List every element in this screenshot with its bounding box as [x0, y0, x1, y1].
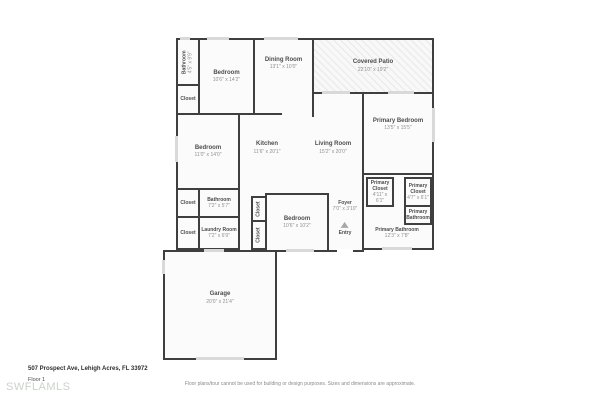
room-label: Dining Room 13'1" x 10'0" [265, 57, 302, 71]
room-label: Bedroom 10'6" x 10'2" [283, 216, 310, 230]
room-name: Closet [256, 227, 262, 242]
window [180, 37, 190, 40]
window [286, 249, 314, 252]
window [162, 260, 165, 274]
room-name: Closet [180, 200, 195, 206]
room-dims: 7'2" x 5'7" [208, 203, 230, 209]
room-dims: 10'6" x 14'2" [213, 77, 240, 83]
room-dims: 12'3" x 7'8" [385, 233, 410, 239]
room-name: Kitchen [256, 141, 278, 149]
room-label: Garage 20'0" x 21'4" [206, 291, 233, 305]
window [432, 108, 435, 142]
room-name: Closet [180, 230, 195, 236]
room-bedroom-bottom: Bedroom 10'6" x 10'2" [265, 193, 329, 252]
room-name: Garage [210, 291, 231, 299]
room-name: Primary Bathroom [406, 209, 430, 222]
opening-dining-kitchen [282, 111, 312, 117]
room-label: Primary Closet 4'11" x 6'1" [368, 180, 392, 205]
window [264, 37, 298, 40]
disclaimer-text: Floor plans/tour cannot be used for buil… [185, 381, 415, 387]
room-label: Bathroom 7'2" x 5'7" [207, 197, 231, 210]
floor-label: Floor 1 [28, 377, 45, 383]
room-dining: Dining Room 13'1" x 10'0" [253, 38, 314, 115]
room-dims: 7'0" x 3'10" [333, 206, 358, 212]
room-dims: 20'0" x 21'4" [206, 299, 233, 305]
room-label: Closet [180, 96, 195, 102]
room-name: Living Room [315, 141, 351, 149]
room-dims: 22'10" x 19'2" [358, 67, 388, 73]
room-closet-mid-2: Closet [176, 216, 200, 250]
room-garage: Garage 20'0" x 21'4" [163, 250, 277, 360]
floor-plan-canvas: Bathroom 4'5" x 9'9" Closet Bedroom 10'6… [0, 0, 600, 400]
room-name: Closet [256, 201, 262, 216]
entry-marker: Entry [339, 222, 352, 236]
room-primary-closet-1: Primary Closet 4'11" x 6'1" [366, 177, 394, 207]
room-dims: 13'1" x 10'0" [270, 64, 297, 70]
room-label: Laundry Room 7'2" x 6'9" [201, 227, 236, 240]
room-label: Bathroom 4'5" x 9'9" [182, 50, 195, 74]
room-laundry: Laundry Room 7'2" x 6'9" [198, 216, 240, 250]
room-dims: 4'7" x 6'1" [407, 195, 429, 201]
room-label: Closet [256, 227, 262, 242]
room-covered-patio: Covered Patio 22'10" x 19'2" [312, 38, 434, 94]
window [175, 136, 178, 162]
room-closet-top: Closet [176, 84, 200, 115]
room-name: Primary Closet [406, 183, 430, 196]
entry-label: Entry [339, 230, 352, 236]
room-dims: 4'11" x 6'1" [368, 192, 392, 205]
room-label: Bedroom 11'0" x 14'0" [194, 145, 221, 159]
room-label-primary-bath: Primary Bathroom 12'3" x 7'8" [375, 227, 419, 240]
room-primary-bathroom-small: Primary Bathroom [404, 205, 432, 225]
room-name: Primary Closet [368, 180, 392, 193]
opening-entry-door [337, 249, 353, 253]
room-bedroom-left: Bedroom 11'0" x 14'0" [176, 113, 240, 190]
room-name: Bedroom [284, 216, 310, 224]
garage-door [196, 357, 244, 360]
room-label: Covered Patio 22'10" x 19'2" [353, 59, 393, 73]
room-primary-bedroom: Primary Bedroom 13'5" x 15'5" [362, 92, 434, 175]
room-dims: 10'6" x 10'2" [283, 223, 310, 229]
room-label: Primary Bathroom [406, 209, 430, 222]
window [207, 37, 229, 40]
room-dims: 11'6" x 20'1" [253, 149, 280, 155]
room-name: Covered Patio [353, 59, 393, 67]
room-primary-closet-2: Primary Closet 4'7" x 6'1" [404, 177, 432, 207]
room-label: Primary Bedroom 13'5" x 15'5" [373, 118, 423, 132]
room-label-living: Living Room 15'2" x 20'0" [315, 141, 351, 155]
sliding-door [322, 91, 350, 94]
room-dims: 13'5" x 15'5" [384, 125, 411, 131]
room-label: Closet [180, 230, 195, 236]
room-dims: 15'2" x 20'0" [319, 149, 346, 155]
opening-living-patio-side [314, 112, 362, 119]
room-dims: 11'0" x 14'0" [194, 152, 221, 158]
window [204, 249, 224, 252]
room-label-foyer: Foyer 7'0" x 3'10" [333, 200, 358, 213]
room-name: Bedroom [195, 145, 221, 153]
room-label-kitchen: Kitchen 11'6" x 20'1" [253, 141, 280, 155]
room-label: Closet [256, 201, 262, 216]
room-name: Primary Bedroom [373, 118, 423, 126]
sliding-door [388, 91, 414, 94]
room-closet-mid-1: Closet [176, 188, 200, 218]
entry-arrow-icon [341, 222, 349, 228]
room-label: Primary Closet 4'7" x 6'1" [406, 183, 430, 202]
room-label: Bedroom 10'6" x 14'2" [213, 70, 240, 84]
room-bathroom-mid: Bathroom 7'2" x 5'7" [198, 188, 240, 218]
room-name: Dining Room [265, 57, 302, 65]
room-bathroom-top: Bathroom 4'5" x 9'9" [176, 38, 200, 86]
address-text: 507 Prospect Ave, Lehigh Acres, FL 33972 [28, 366, 148, 372]
room-name: Bedroom [213, 70, 239, 78]
room-dims: 4'5" x 9'9" [188, 51, 194, 73]
window [382, 247, 412, 250]
room-dims: 7'2" x 6'9" [208, 233, 230, 239]
room-label: Closet [180, 200, 195, 206]
room-bedroom-topleft: Bedroom 10'6" x 14'2" [198, 38, 255, 115]
room-name: Closet [180, 96, 195, 102]
